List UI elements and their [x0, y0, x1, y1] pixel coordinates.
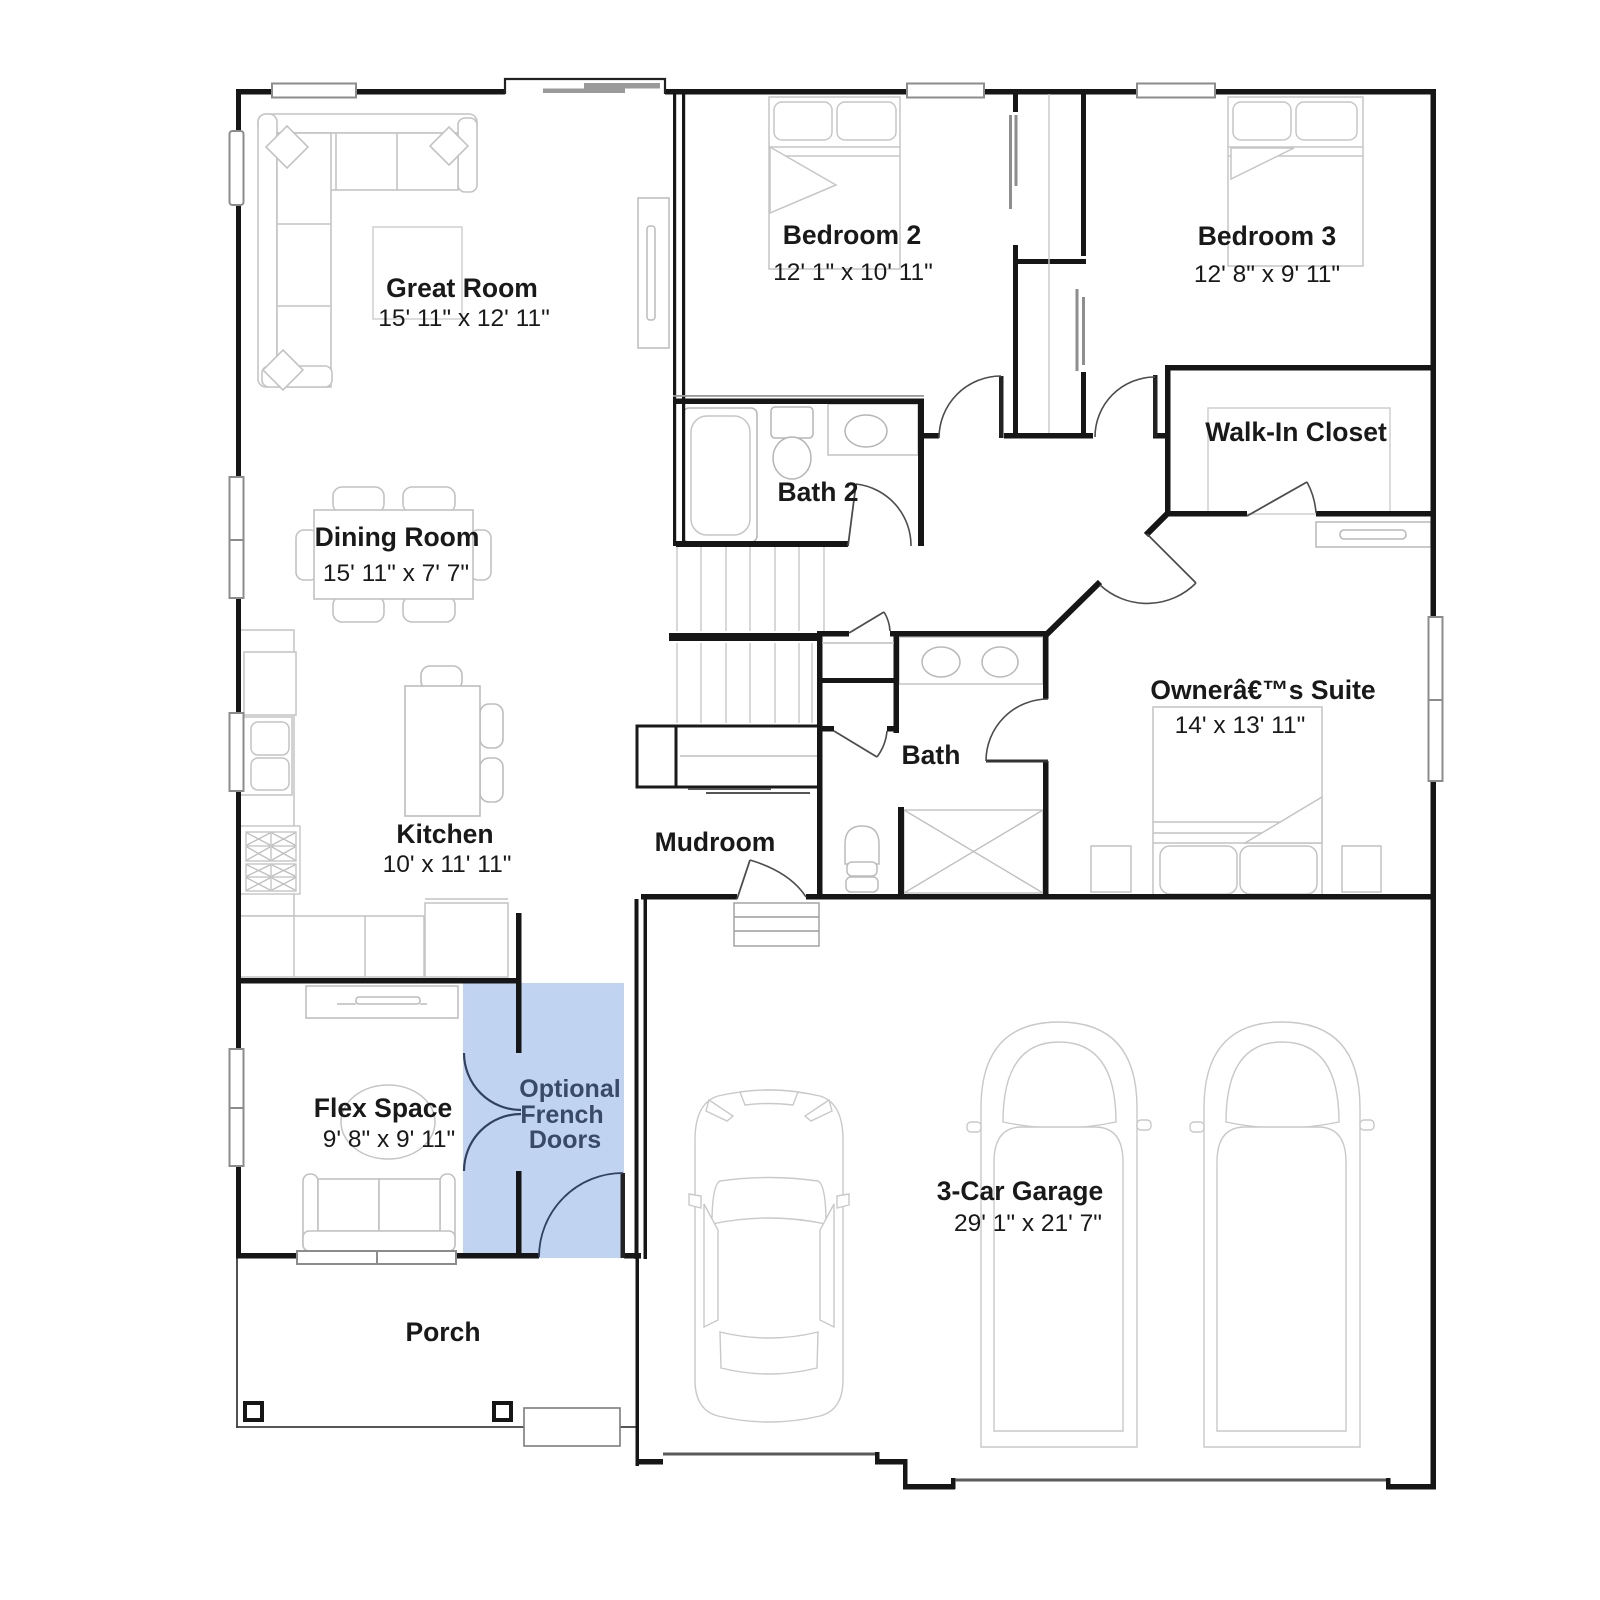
- svg-text:29' 1" x 21' 7": 29' 1" x 21' 7": [954, 1210, 1102, 1237]
- svg-text:14' x 13' 11": 14' x 13' 11": [1175, 712, 1306, 739]
- svg-text:Porch: Porch: [405, 1317, 480, 1347]
- svg-text:9' 8" x 9' 11": 9' 8" x 9' 11": [323, 1126, 456, 1153]
- svg-text:French: French: [520, 1101, 603, 1129]
- svg-text:Flex Space: Flex Space: [314, 1093, 452, 1123]
- svg-text:12' 1" x 10' 11": 12' 1" x 10' 11": [773, 259, 933, 286]
- svg-text:Walk-In Closet: Walk-In Closet: [1205, 417, 1387, 447]
- svg-text:12' 8" x 9' 11": 12' 8" x 9' 11": [1194, 261, 1340, 288]
- svg-text:Mudroom: Mudroom: [655, 827, 776, 857]
- svg-text:Kitchen: Kitchen: [396, 819, 493, 849]
- svg-text:Bedroom 3: Bedroom 3: [1198, 221, 1336, 251]
- svg-text:Ownerâ€™s Suite: Ownerâ€™s Suite: [1150, 675, 1375, 705]
- svg-text:Bath 2: Bath 2: [778, 477, 859, 507]
- svg-text:3-Car Garage: 3-Car Garage: [937, 1176, 1103, 1206]
- svg-text:Optional: Optional: [519, 1075, 620, 1103]
- svg-text:Great Room: Great Room: [386, 273, 538, 303]
- svg-text:15' 11" x 7' 7": 15' 11" x 7' 7": [323, 560, 469, 587]
- svg-text:Doors: Doors: [529, 1126, 601, 1154]
- svg-text:10' x 11' 11": 10' x 11' 11": [383, 851, 512, 878]
- svg-text:Dining Room: Dining Room: [315, 522, 480, 552]
- svg-text:Bath: Bath: [902, 740, 961, 770]
- svg-text:15' 11" x 12' 11": 15' 11" x 12' 11": [378, 305, 550, 332]
- svg-text:Bedroom 2: Bedroom 2: [783, 220, 921, 250]
